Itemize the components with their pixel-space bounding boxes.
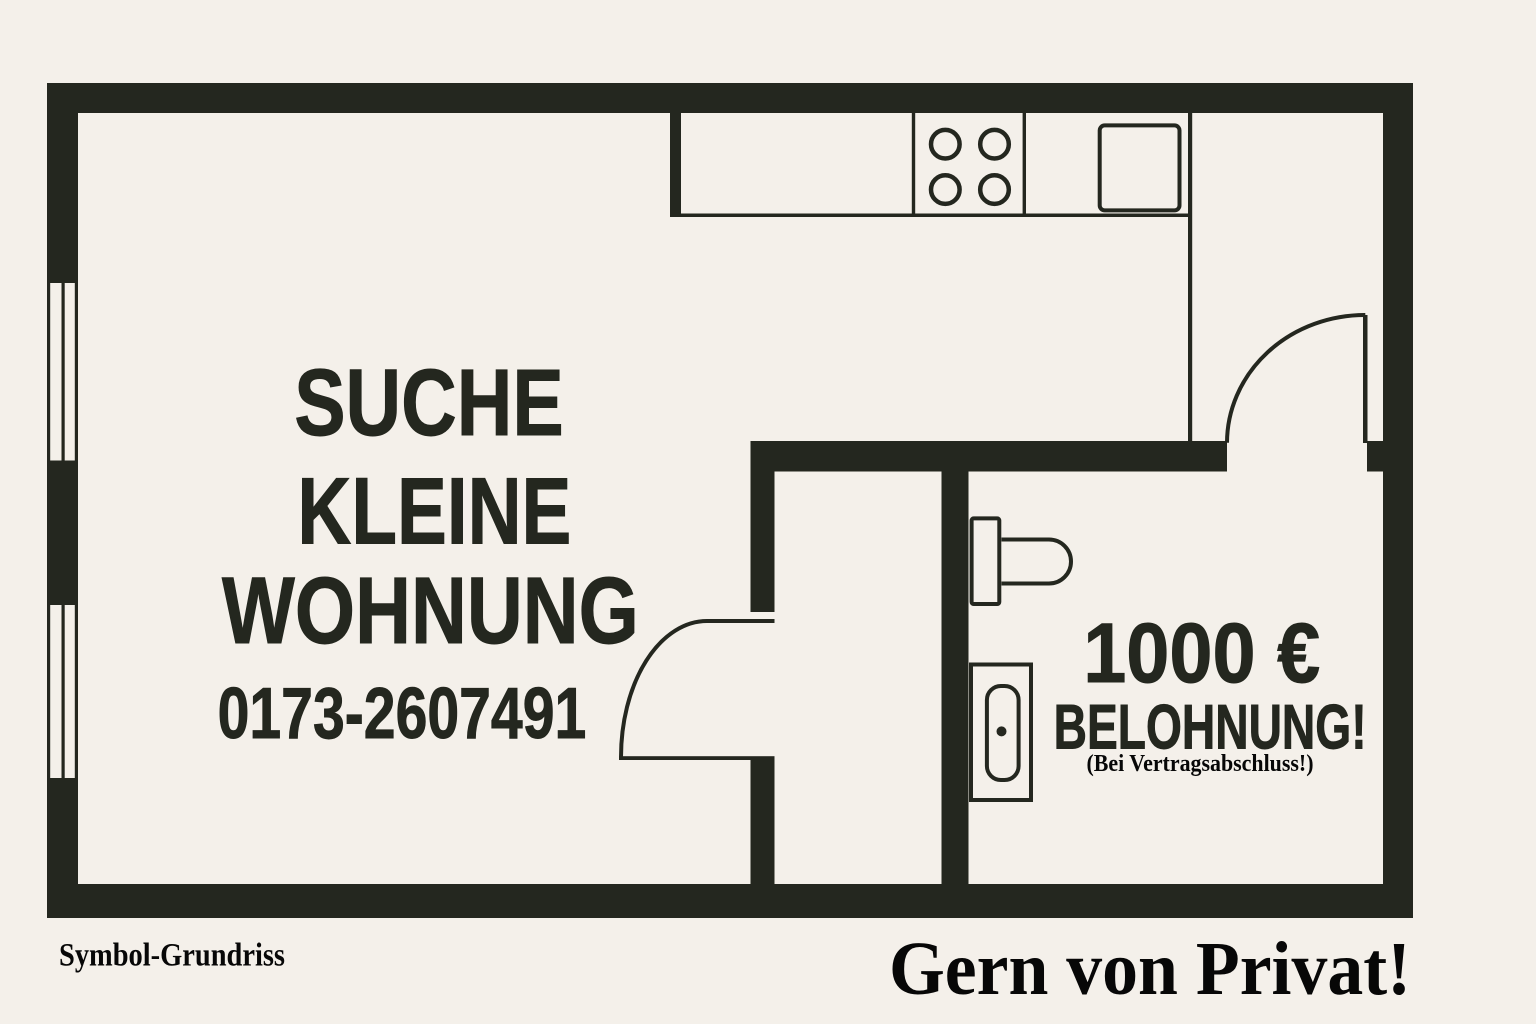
svg-text:Symbol-Grundriss: Symbol-Grundriss bbox=[59, 938, 285, 974]
svg-text:0173-2607491: 0173-2607491 bbox=[218, 674, 587, 754]
svg-text:1000 €: 1000 € bbox=[1083, 606, 1320, 700]
svg-text:WOHNUNG: WOHNUNG bbox=[222, 558, 639, 664]
svg-text:Gern von Privat!: Gern von Privat! bbox=[889, 927, 1411, 1011]
svg-text:(Bei Vertragsabschluss!): (Bei Vertragsabschluss!) bbox=[1087, 751, 1314, 777]
svg-text:KLEINE: KLEINE bbox=[297, 458, 571, 564]
svg-text:SUCHE: SUCHE bbox=[294, 350, 564, 456]
